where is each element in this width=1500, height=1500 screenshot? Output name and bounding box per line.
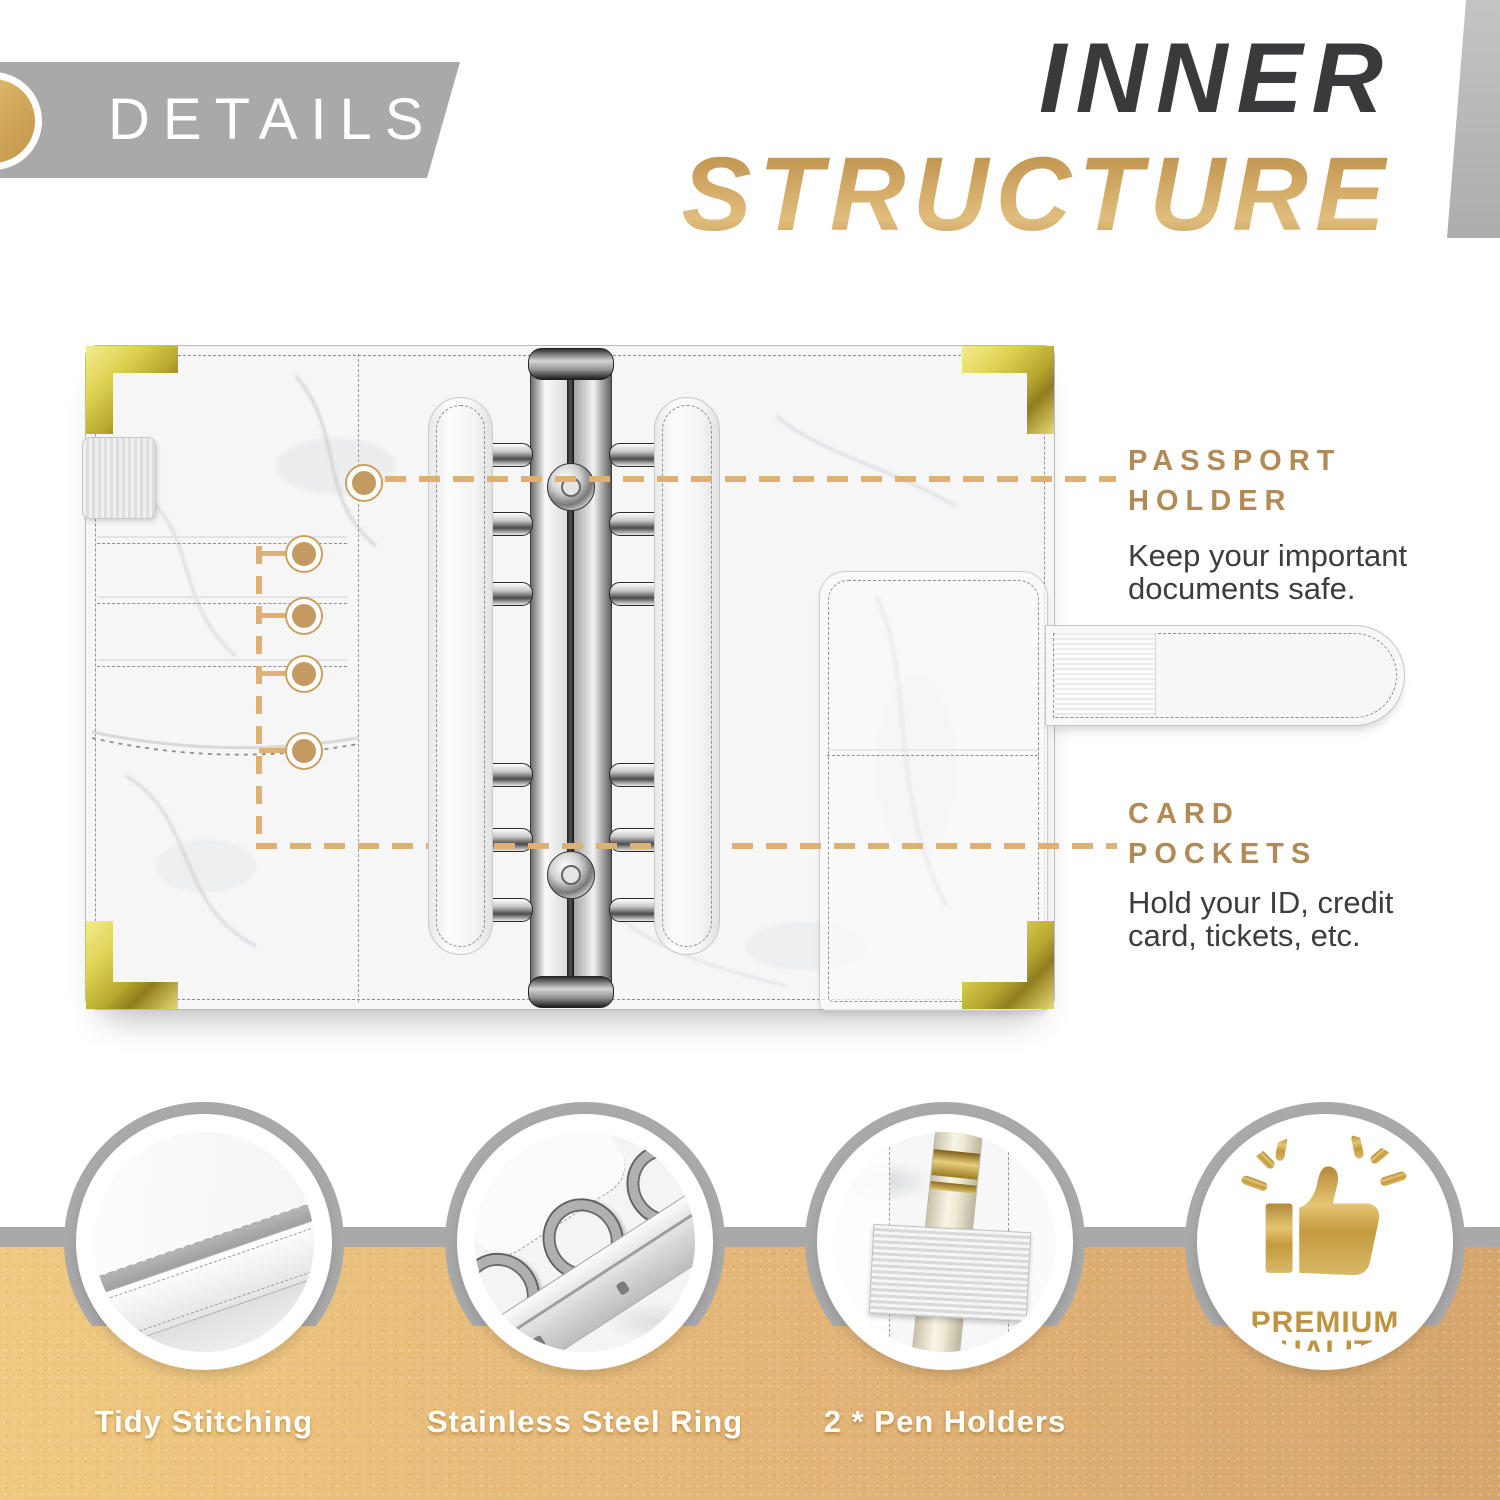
- feature-label: Stainless Steel Ring: [385, 1404, 785, 1440]
- thumbs-up-icon: [1240, 1134, 1410, 1302]
- callout-marker-dot: [287, 734, 321, 768]
- callout-dash-stub: [259, 613, 285, 618]
- heading-line: PASSPORT: [1128, 441, 1341, 481]
- desc-line: card, tickets, etc.: [1128, 919, 1393, 952]
- badge-line: PREMIUM: [1215, 1308, 1435, 1337]
- pen-elastic-band: [869, 1224, 1031, 1322]
- premium-quality-badge: PREMIUM QUALITY: [1185, 1102, 1465, 1382]
- pen-gold-band: [931, 1149, 979, 1180]
- desc-line: documents safe.: [1128, 572, 1407, 605]
- passport-pocket: [819, 571, 1048, 1011]
- cover-fold-stitch: [358, 354, 359, 1002]
- passport-holder-heading: PASSPORT HOLDER: [1128, 441, 1341, 521]
- callout-marker-dot: [347, 466, 381, 500]
- corner-accent-bar: [1447, 0, 1500, 238]
- feature-circle-pen-holders: [805, 1102, 1085, 1382]
- details-label: DETAILS: [108, 62, 436, 178]
- binder-photo: [85, 345, 1055, 1010]
- pen-gold-ring: [930, 1181, 977, 1194]
- badge-text: PREMIUM QUALITY: [1215, 1308, 1435, 1352]
- desc-line: Hold your ID, credit: [1128, 886, 1393, 919]
- closure-strap: [1045, 625, 1405, 726]
- closure-strap-elastic: [1055, 633, 1156, 716]
- desc-line: Keep your important: [1128, 539, 1407, 572]
- tidy-stitching-photo: [94, 1132, 314, 1352]
- card-pockets-heading: CARD POCKETS: [1128, 794, 1317, 874]
- ring-mechanism-spine: [567, 354, 574, 1002]
- mechanism-snap-knob: [547, 851, 595, 899]
- callout-marker-dot: [287, 537, 321, 571]
- ring-mechanism-cap: [528, 348, 614, 380]
- page-title-line2: STRUCTURE: [600, 140, 1392, 250]
- mechanism-snap-knob: [547, 463, 595, 511]
- feature-label: Tidy Stitching: [4, 1404, 404, 1440]
- passport-holder-description: Keep your important documents safe.: [1128, 539, 1407, 605]
- side-pen-loop: [82, 437, 156, 519]
- feature-circle-steel-ring: [445, 1102, 725, 1382]
- ring-mechanism-cap: [528, 976, 614, 1008]
- page-title-line1: INNER: [600, 28, 1392, 128]
- heading-line: POCKETS: [1128, 834, 1317, 874]
- badge-content: PREMIUM QUALITY: [1215, 1132, 1435, 1352]
- product-detail-image: DETAILS INNER STRUCTURE: [0, 0, 1500, 1500]
- passport-pocket-divider-stitch: [827, 749, 1038, 756]
- feature-label: 2 * Pen Holders: [745, 1404, 1145, 1440]
- details-banner: DETAILS: [0, 62, 460, 178]
- callout-marker-dot: [287, 599, 321, 633]
- card-pockets-description: Hold your ID, credit card, tickets, etc.: [1128, 886, 1393, 952]
- pen-holders-photo: [835, 1132, 1055, 1352]
- heading-line: HOLDER: [1128, 481, 1341, 521]
- steel-ring-photo: [475, 1132, 695, 1352]
- passport-callout-line: [385, 476, 1116, 482]
- feature-circle-tidy-stitching: [64, 1102, 344, 1382]
- callout-marker-dot: [287, 657, 321, 691]
- callout-dash-stub: [259, 748, 285, 753]
- callout-dashed-vertical-line: [256, 546, 262, 849]
- callout-dash-stub: [259, 551, 285, 556]
- heading-line: CARD: [1128, 794, 1317, 834]
- callout-dash-stub: [259, 671, 285, 676]
- badge-line: QUALITY: [1215, 1337, 1435, 1352]
